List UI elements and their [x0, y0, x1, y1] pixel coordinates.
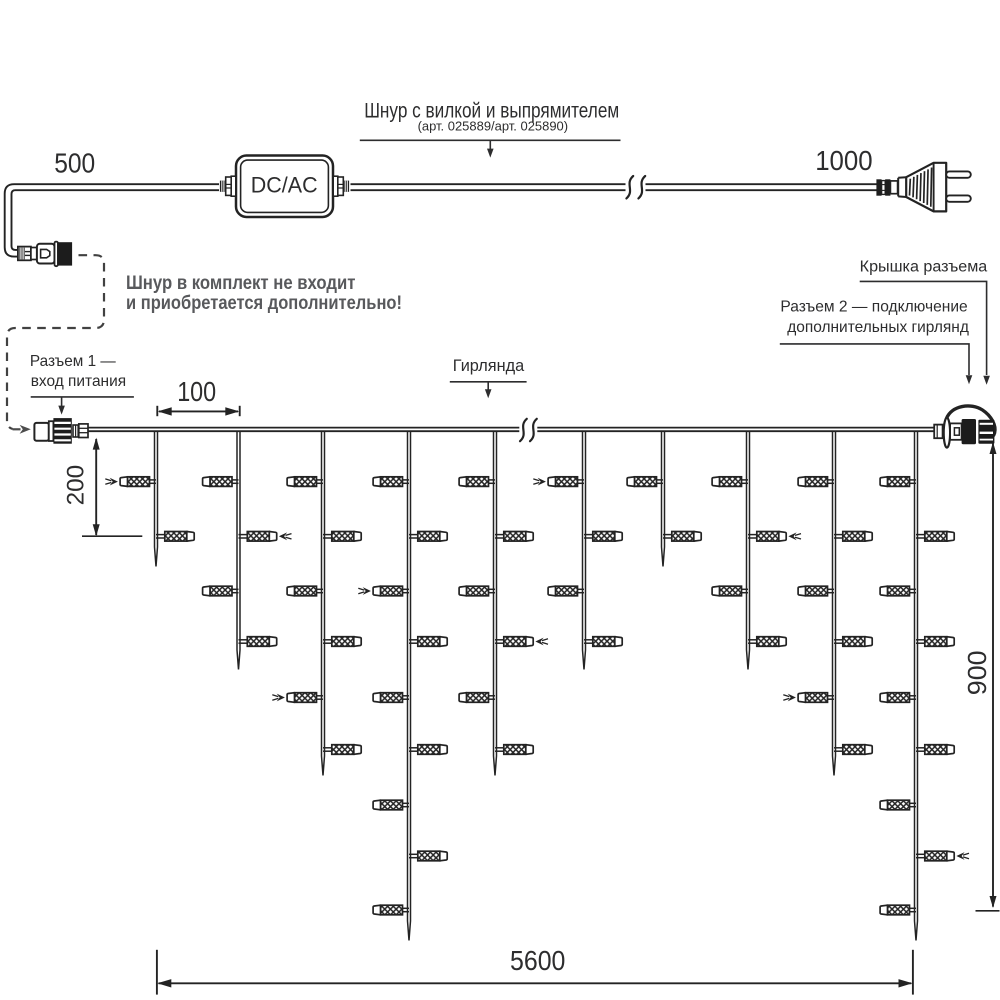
svg-text:Крышка разъема: Крышка разъема — [860, 258, 988, 275]
svg-text:1000: 1000 — [815, 145, 873, 176]
svg-text:5600: 5600 — [510, 945, 565, 976]
svg-text:500: 500 — [54, 147, 95, 178]
svg-text:Гирлянда: Гирлянда — [453, 357, 525, 375]
svg-text:900: 900 — [962, 650, 992, 695]
svg-text:DC/AC: DC/AC — [251, 172, 318, 197]
svg-text:200: 200 — [63, 465, 90, 506]
svg-text:100: 100 — [177, 376, 216, 407]
svg-text:(арт. 025889/арт. 025890): (арт. 025889/арт. 025890) — [418, 119, 568, 134]
svg-text:и приобретается дополнительно!: и приобретается дополнительно! — [126, 293, 402, 314]
svg-text:вход питания: вход питания — [31, 373, 126, 390]
svg-text:Разъем 2 — подключение: Разъем 2 — подключение — [780, 299, 967, 316]
svg-text:Шнур в комплект не входит: Шнур в комплект не входит — [126, 273, 356, 294]
svg-text:Разъем 1 —: Разъем 1 — — [30, 353, 116, 370]
svg-text:дополнительных гирлянд: дополнительных гирлянд — [787, 319, 969, 336]
